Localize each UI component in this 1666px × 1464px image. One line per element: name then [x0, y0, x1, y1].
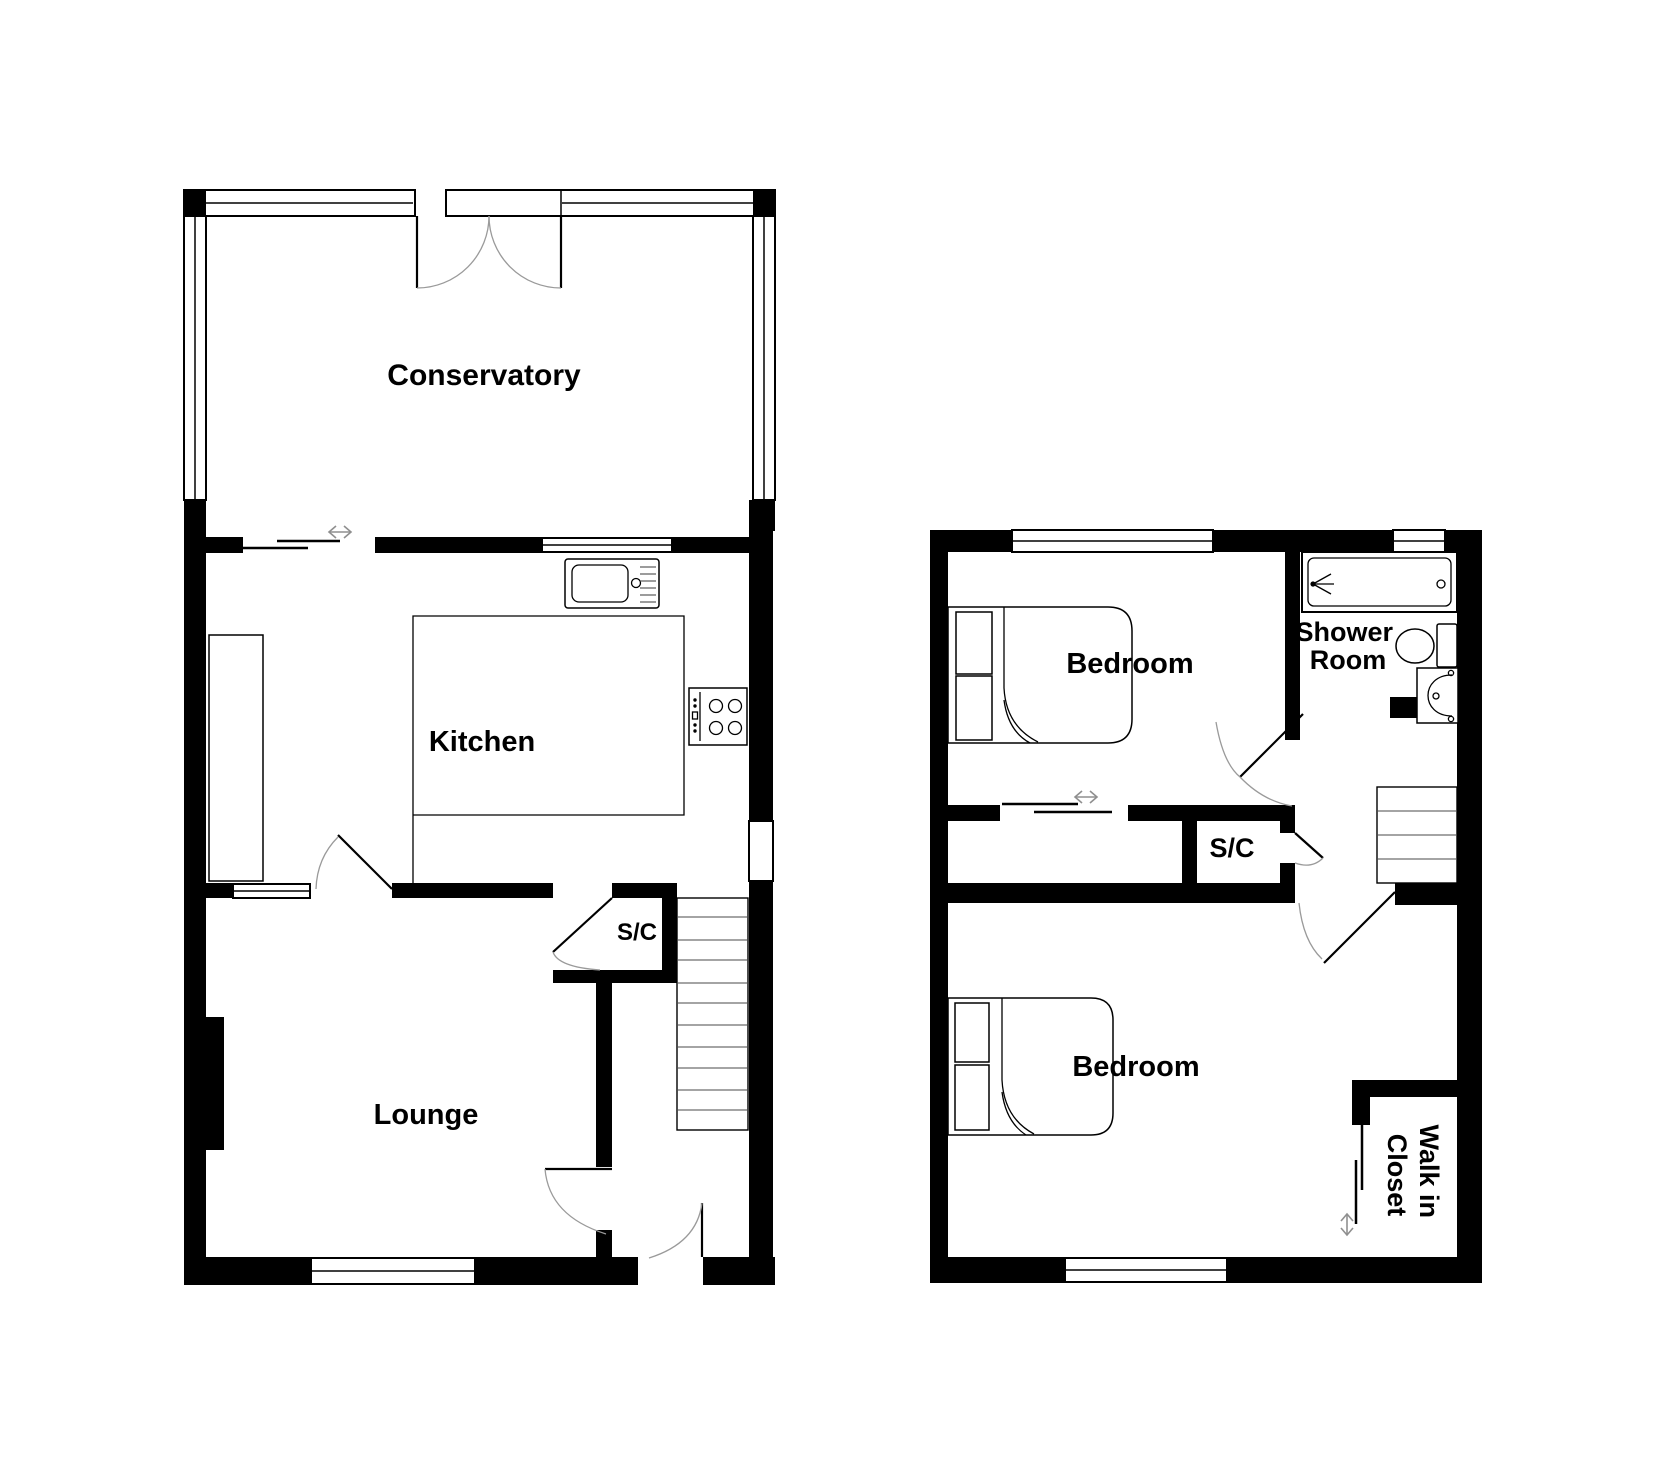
toilet-icon [1396, 624, 1457, 667]
entrance-door-icon [649, 1203, 702, 1258]
shower-label-line2: Room [1310, 645, 1387, 675]
wall-segment [596, 983, 612, 1167]
wall-left [184, 531, 206, 1285]
conservatory-room: Conservatory [184, 190, 775, 531]
wall-segment [392, 883, 553, 898]
wall-right [749, 881, 773, 1257]
closet-label-line2: Closet [1382, 1134, 1412, 1217]
shower-door-icon [1216, 714, 1303, 806]
chimney-breast [206, 1017, 224, 1150]
shower-room: Shower Room [1216, 552, 1458, 806]
kitchen-sink-icon [565, 559, 659, 608]
french-doors-icon [417, 216, 561, 288]
cupboard-door-icon [553, 898, 612, 970]
wall-segment [1395, 883, 1457, 905]
kitchen-cabinet-icon [209, 635, 263, 881]
wall-segment [206, 883, 233, 898]
room-label-kitchen: Kitchen [429, 726, 535, 758]
wall-corner [184, 500, 206, 531]
wall-right [1457, 530, 1482, 1283]
room-label-shower: Shower Room [1295, 617, 1400, 675]
bath-icon [1302, 552, 1457, 612]
hob-icon [689, 688, 747, 745]
floorplan-page: Conservatory [0, 0, 1666, 1464]
wall-top [1213, 530, 1393, 552]
wall-corner [184, 190, 206, 216]
double-arrow-horizontal-icon [329, 526, 351, 538]
wall-segment [1352, 1080, 1370, 1125]
wall-corner [749, 500, 775, 531]
cupboard-door-icon [1295, 833, 1323, 865]
wall-bottom [930, 1257, 1065, 1283]
wall-segment [948, 805, 1000, 821]
closet-sliding-door-icon [1341, 1125, 1362, 1235]
wall-segment [1182, 821, 1197, 885]
wall-bottom [475, 1257, 638, 1285]
wall-segment [1128, 805, 1280, 821]
lounge-door-icon [545, 1169, 612, 1234]
wall-segment [1280, 805, 1295, 833]
wall-segment [612, 883, 677, 898]
bedroom-back-door-icon [1299, 892, 1395, 963]
sliding-door-icon [1002, 791, 1112, 812]
closet-label-line1: Walk in [1414, 1124, 1444, 1218]
ground-floor: Conservatory [184, 190, 775, 1285]
wall-segment [553, 970, 677, 983]
room-label-bedroom-front: Bedroom [1066, 648, 1193, 680]
wall-segment [1280, 863, 1295, 885]
wall-segment [596, 1230, 612, 1257]
wall-bottom [703, 1257, 775, 1285]
wall-right [749, 531, 773, 821]
bedroom-front-room: Bedroom [948, 607, 1194, 812]
stairs-icon [677, 898, 748, 1130]
room-label-closet: Walk in Closet [1382, 1124, 1444, 1225]
wall-left [930, 530, 948, 1283]
room-label-cupboard-ground: S/C [617, 919, 657, 946]
room-label-conservatory: Conservatory [387, 359, 581, 392]
wall-corner [753, 190, 775, 216]
lounge-room: S/C [374, 898, 748, 1258]
wall-bottom [1227, 1257, 1482, 1283]
wall-segment [948, 883, 1295, 903]
double-arrow-horizontal-icon [1075, 791, 1097, 803]
shower-label-line1: Shower [1295, 617, 1393, 647]
kitchen-room: Kitchen [209, 526, 747, 889]
wall-recess [749, 821, 773, 881]
kitchen-door-icon [316, 835, 392, 889]
wall-segment [206, 537, 243, 553]
double-arrow-vertical-icon [1341, 1214, 1353, 1235]
sliding-door-icon [243, 526, 351, 548]
room-label-lounge: Lounge [374, 1099, 479, 1131]
stairs-icon [1377, 787, 1457, 883]
wall-bottom [184, 1257, 311, 1285]
room-label-cupboard-first: S/C [1209, 833, 1254, 863]
wall-segment [375, 537, 542, 553]
floorplan-canvas: Conservatory [0, 0, 1666, 1464]
wall-segment [672, 537, 749, 553]
basin-icon [1417, 668, 1458, 723]
room-label-bedroom-back: Bedroom [1072, 1051, 1199, 1083]
first-floor: Bedroom [930, 530, 1482, 1283]
